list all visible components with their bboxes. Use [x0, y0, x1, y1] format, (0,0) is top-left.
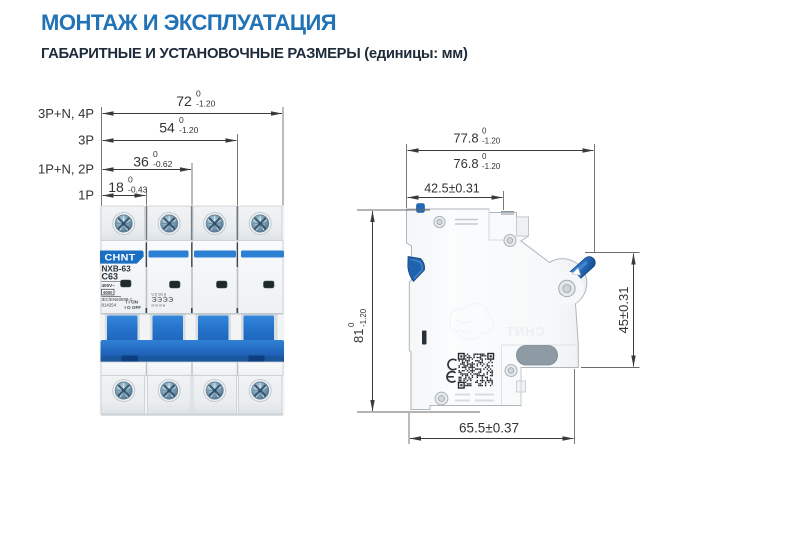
svg-text:400V~: 400V~ — [102, 283, 116, 288]
svg-text:0: 0 — [196, 89, 201, 99]
svg-text:CHNT: CHNT — [505, 324, 545, 339]
svg-text:6000: 6000 — [103, 290, 113, 295]
svg-text:C63: C63 — [102, 272, 119, 282]
svg-text:-0.62: -0.62 — [153, 159, 173, 169]
svg-text:-1.20: -1.20 — [179, 125, 199, 135]
svg-text:76.8: 76.8 — [453, 156, 478, 171]
svg-text:45±0.31: 45±0.31 — [616, 287, 631, 334]
svg-text:42.5±0.31: 42.5±0.31 — [424, 182, 480, 196]
svg-text:-1.20: -1.20 — [482, 162, 501, 171]
svg-text:18: 18 — [108, 179, 124, 195]
svg-text:36: 36 — [133, 154, 149, 170]
svg-text:-1.20: -1.20 — [359, 308, 368, 327]
svg-text:65.5±0.37: 65.5±0.37 — [459, 421, 519, 436]
svg-text:3P+N, 4P: 3P+N, 4P — [38, 106, 94, 121]
svg-text:54: 54 — [159, 120, 175, 136]
svg-text:81: 81 — [351, 329, 366, 343]
svg-text:0: 0 — [128, 175, 133, 185]
svg-text:0: 0 — [482, 152, 487, 161]
svg-text:-0.43: -0.43 — [128, 185, 148, 195]
svg-text:0: 0 — [482, 127, 487, 136]
svg-text:I O OFF: I O OFF — [125, 305, 142, 310]
svg-text:-1.20: -1.20 — [196, 99, 216, 109]
svg-text:814254: 814254 — [102, 303, 117, 308]
svg-text:0: 0 — [179, 115, 184, 125]
svg-text:0: 0 — [347, 322, 356, 327]
svg-text:0: 0 — [153, 149, 158, 159]
svg-text:-1.20: -1.20 — [482, 137, 501, 146]
svg-text:1P: 1P — [78, 188, 94, 203]
svg-text:77.8: 77.8 — [453, 131, 478, 146]
svg-text:1P+N, 2P: 1P+N, 2P — [38, 162, 94, 177]
svg-text:3P: 3P — [78, 133, 94, 148]
svg-text:I I ON: I I ON — [126, 300, 139, 305]
svg-text:nr w nr w: nr w nr w — [152, 304, 166, 308]
svg-text:U [] SU []: U [] SU [] — [152, 293, 167, 297]
svg-text:CHNT: CHNT — [105, 253, 137, 263]
svg-text:72: 72 — [176, 93, 192, 109]
